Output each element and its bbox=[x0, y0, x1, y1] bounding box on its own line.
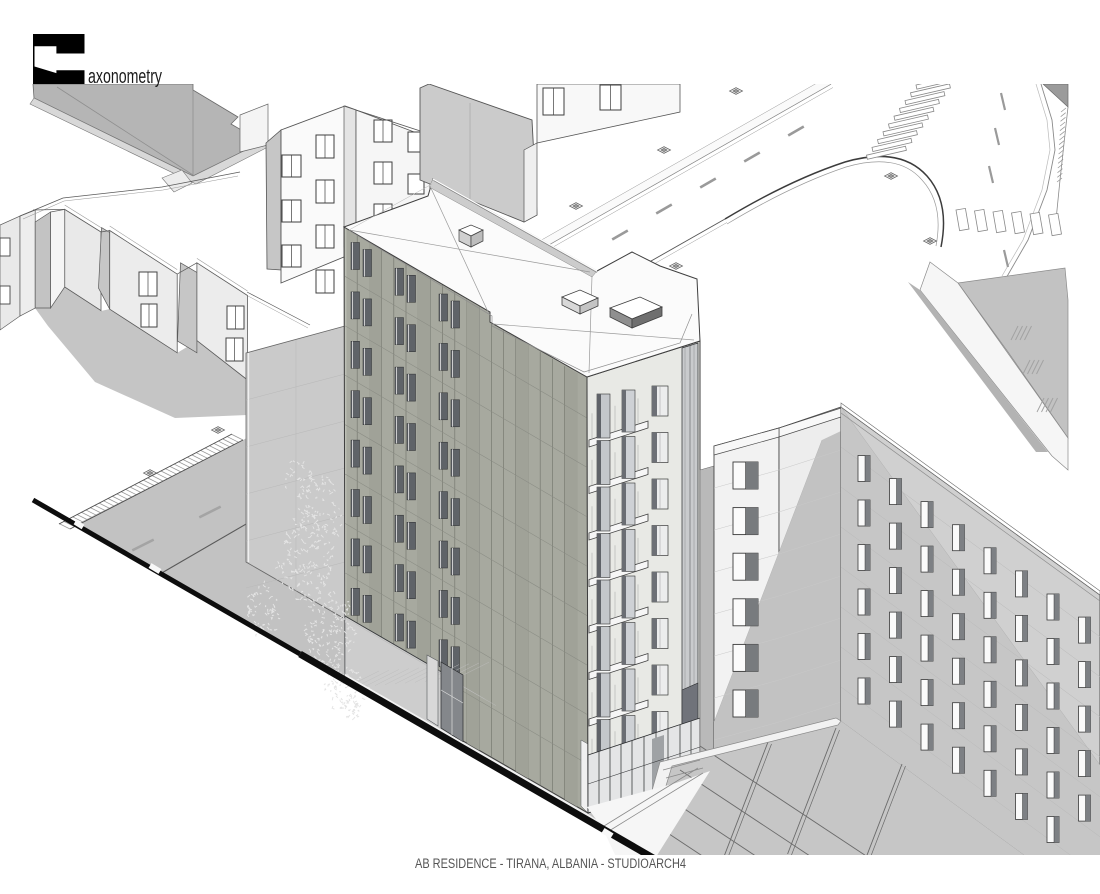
svg-text:axonometry: axonometry bbox=[88, 66, 162, 88]
svg-text:AB RESIDENCE - TIRANA, ALBAN: AB RESIDENCE - TIRANA, ALBANIA - STUDIOA… bbox=[415, 856, 686, 871]
